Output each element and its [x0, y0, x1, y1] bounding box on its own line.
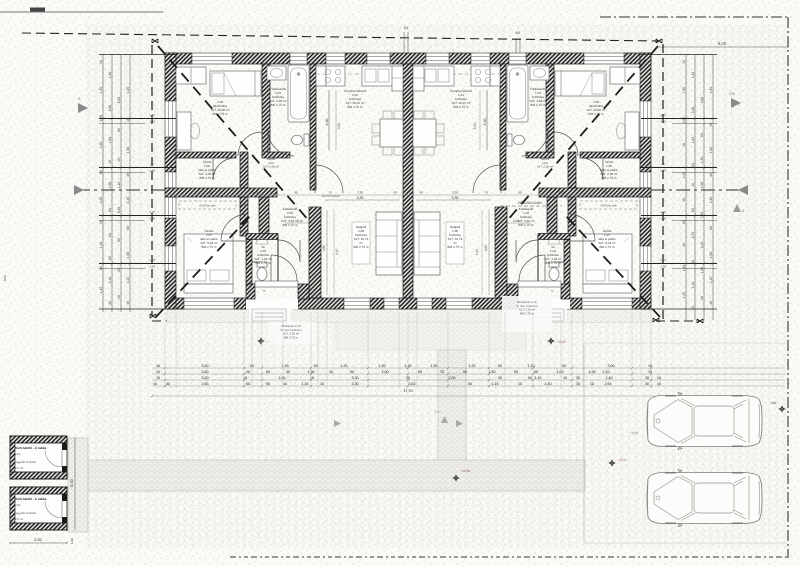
svg-text:1,45: 1,45 — [700, 267, 704, 274]
svg-text:1,98: 1,98 — [660, 217, 666, 221]
svg-text:50: 50 — [350, 370, 354, 374]
svg-text:fagyálló burkolat: fagyálló burkolat — [15, 460, 36, 464]
svg-text:10: 10 — [283, 382, 287, 386]
svg-text:1,00: 1,00 — [700, 182, 704, 189]
svg-text:1,50: 1,50 — [149, 210, 155, 214]
svg-text:10: 10 — [108, 160, 112, 164]
svg-text:10: 10 — [320, 382, 324, 386]
svg-text:2,10: 2,10 — [603, 370, 610, 374]
svg-text:+0,09: +0,09 — [461, 469, 470, 473]
svg-text:CN: CN — [729, 91, 735, 96]
svg-text:5,15: 5,15 — [335, 249, 339, 255]
svg-text:10: 10 — [709, 123, 713, 127]
svg-text:2,25: 2,25 — [99, 197, 103, 204]
svg-text:50: 50 — [562, 364, 566, 368]
svg-text:2,0 m²: 2,0 m² — [15, 517, 23, 521]
svg-text:2,85: 2,85 — [484, 245, 488, 251]
svg-text:5,15: 5,15 — [475, 249, 479, 255]
svg-text:1,15: 1,15 — [492, 382, 499, 386]
svg-text:10: 10 — [657, 382, 661, 386]
svg-text:1,50: 1,50 — [682, 117, 686, 124]
svg-text:2,10: 2,10 — [252, 191, 258, 195]
svg-text:30: 30 — [576, 382, 580, 386]
svg-text:1,15: 1,15 — [691, 282, 695, 289]
svg-text:60: 60 — [682, 220, 686, 224]
svg-text:10: 10 — [657, 376, 661, 380]
svg-text:10: 10 — [126, 118, 130, 122]
svg-text:+0,06: +0,06 — [618, 458, 627, 462]
svg-text:1,55: 1,55 — [379, 364, 386, 368]
svg-text:90: 90 — [709, 226, 713, 230]
svg-text:90: 90 — [208, 191, 212, 195]
svg-text:3,62: 3,62 — [409, 382, 416, 386]
svg-text:10: 10 — [329, 370, 333, 374]
svg-text:4,10: 4,10 — [700, 242, 704, 249]
svg-text:2,65: 2,65 — [605, 382, 612, 386]
svg-text:2,10: 2,10 — [513, 219, 519, 223]
svg-text:90: 90 — [266, 382, 270, 386]
svg-text:50: 50 — [246, 382, 250, 386]
svg-text:10: 10 — [153, 382, 157, 386]
svg-text:1,00: 1,00 — [70, 538, 74, 544]
svg-text:+0,00: +0,00 — [630, 431, 638, 435]
svg-text:50: 50 — [468, 382, 472, 386]
svg-text:40: 40 — [126, 173, 130, 177]
svg-text:4,00: 4,00 — [483, 119, 487, 126]
svg-text:60: 60 — [117, 128, 121, 132]
svg-text:3,00: 3,00 — [608, 364, 615, 368]
svg-text:10: 10 — [590, 382, 594, 386]
svg-text:8,5: 8,5 — [404, 26, 409, 30]
svg-text:2,25: 2,25 — [108, 105, 112, 112]
svg-text:1,50: 1,50 — [709, 147, 713, 154]
svg-text:10: 10 — [156, 370, 160, 374]
svg-text:2,00: 2,00 — [449, 376, 456, 380]
svg-text:8,5: 8,5 — [516, 31, 521, 35]
svg-text:3,30: 3,30 — [357, 196, 364, 200]
svg-text:1,98: 1,98 — [660, 169, 666, 173]
svg-text:1,20: 1,20 — [108, 72, 112, 79]
svg-text:17,70: 17,70 — [404, 389, 413, 393]
svg-text:1,50: 1,50 — [149, 258, 155, 262]
svg-text:10: 10 — [691, 183, 695, 187]
svg-text:+0,42: +0,42 — [557, 340, 566, 344]
svg-text:1,15: 1,15 — [108, 277, 112, 284]
svg-text:70: 70 — [328, 191, 332, 195]
svg-text:1,25: 1,25 — [469, 364, 476, 368]
svg-text:3,65: 3,65 — [473, 123, 477, 130]
svg-text:2,00: 2,00 — [382, 370, 389, 374]
svg-text:50: 50 — [99, 220, 103, 224]
svg-text:70: 70 — [484, 191, 488, 195]
svg-text:fagyálló burkolat: fagyálló burkolat — [15, 511, 36, 515]
svg-text:2,40: 2,40 — [545, 382, 552, 386]
svg-text:Kerti tároló - 1. lakás: Kerti tároló - 1. lakás — [15, 497, 47, 501]
svg-text:60: 60 — [534, 370, 538, 374]
svg-text:1,50: 1,50 — [126, 147, 130, 154]
svg-text:90: 90 — [393, 191, 397, 195]
svg-text:10: 10 — [563, 376, 567, 380]
svg-text:+0,00 ksz jelb: +0,00 ksz jelb — [599, 204, 617, 208]
svg-text:1,45: 1,45 — [682, 292, 686, 299]
svg-text:60: 60 — [108, 208, 112, 212]
svg-text:1,35: 1,35 — [99, 87, 103, 94]
svg-text:45: 45 — [691, 306, 695, 310]
svg-text:3,30: 3,30 — [352, 376, 359, 380]
svg-text:30: 30 — [645, 382, 649, 386]
svg-text:10: 10 — [518, 382, 522, 386]
svg-text:60: 60 — [99, 266, 103, 270]
svg-text:1,15: 1,15 — [126, 277, 130, 284]
svg-text:1,15: 1,15 — [302, 382, 309, 386]
svg-text:10: 10 — [709, 301, 713, 305]
svg-text:30: 30 — [576, 376, 580, 380]
svg-text:1,40: 1,40 — [99, 242, 103, 249]
svg-text:1,55: 1,55 — [682, 87, 686, 94]
svg-text:20: 20 — [246, 370, 250, 374]
svg-text:2,0 m²: 2,0 m² — [15, 466, 23, 470]
svg-text:10: 10 — [117, 158, 121, 162]
svg-text:+0,00 ksz jelb: +0,00 ksz jelb — [198, 204, 216, 208]
svg-text:90: 90 — [108, 256, 112, 260]
svg-text:3,65: 3,65 — [337, 123, 341, 130]
svg-text:1,98: 1,98 — [660, 120, 666, 124]
svg-text:40: 40 — [286, 370, 290, 374]
svg-text:25: 25 — [117, 268, 121, 272]
svg-text:1,45: 1,45 — [99, 287, 103, 294]
svg-text:1,98: 1,98 — [660, 265, 666, 269]
svg-text:A: A — [78, 96, 81, 101]
svg-text:2,25: 2,25 — [691, 107, 695, 114]
svg-text:50: 50 — [514, 370, 518, 374]
svg-text:10: 10 — [682, 143, 686, 147]
svg-text:60: 60 — [99, 170, 103, 174]
svg-text:2,25: 2,25 — [117, 97, 121, 104]
svg-text:1,50: 1,50 — [709, 252, 713, 259]
svg-text:3,00: 3,00 — [202, 370, 209, 374]
svg-text:1,30: 1,30 — [700, 157, 704, 164]
svg-text:3,30: 3,30 — [452, 191, 458, 195]
svg-text:30: 30 — [498, 376, 502, 380]
svg-text:10: 10 — [682, 60, 686, 64]
svg-text:4,10: 4,10 — [126, 197, 130, 204]
svg-text:DNY: DNY — [434, 410, 442, 414]
svg-text:2,00: 2,00 — [34, 538, 41, 542]
svg-text:1,15: 1,15 — [709, 277, 713, 284]
svg-text:50: 50 — [691, 163, 695, 167]
svg-text:3,00: 3,00 — [202, 376, 209, 380]
svg-text:1,50: 1,50 — [660, 210, 666, 214]
svg-text:90: 90 — [604, 191, 608, 195]
svg-text:30: 30 — [99, 60, 103, 64]
svg-text:30: 30 — [700, 296, 704, 300]
svg-text:30: 30 — [645, 376, 649, 380]
svg-text:90: 90 — [419, 191, 423, 195]
svg-text:1,35: 1,35 — [691, 72, 695, 79]
svg-text:1,15: 1,15 — [535, 376, 542, 380]
svg-text:1,50: 1,50 — [660, 258, 666, 262]
svg-text:1,45: 1,45 — [709, 197, 713, 204]
svg-text:1,05: 1,05 — [99, 115, 103, 122]
svg-text:ácsi: ácsi — [3, 275, 7, 282]
svg-text:30: 30 — [682, 198, 686, 202]
svg-text:50: 50 — [528, 376, 532, 380]
svg-text:60: 60 — [418, 370, 422, 374]
svg-text:1,25: 1,25 — [341, 364, 348, 368]
svg-text:1,98: 1,98 — [149, 217, 155, 221]
svg-text:40: 40 — [682, 243, 686, 247]
svg-text:2,10: 2,10 — [558, 191, 564, 195]
svg-text:1,98: 1,98 — [149, 169, 155, 173]
svg-text:2,50: 2,50 — [279, 376, 286, 380]
svg-text:4,70: 4,70 — [240, 203, 246, 207]
svg-text:70: 70 — [440, 370, 444, 374]
svg-text:5,00: 5,00 — [718, 41, 727, 46]
svg-text:10: 10 — [156, 376, 160, 380]
svg-text:90: 90 — [691, 260, 695, 264]
svg-text:4,00: 4,00 — [325, 119, 329, 126]
svg-text:1,00: 1,00 — [557, 370, 564, 374]
svg-text:7,20: 7,20 — [700, 212, 704, 219]
svg-text:5,40: 5,40 — [117, 207, 121, 214]
svg-text:2,66: 2,66 — [202, 382, 209, 386]
svg-text:1,20: 1,20 — [149, 113, 155, 117]
svg-text:1,20: 1,20 — [126, 87, 130, 94]
svg-text:1,20: 1,20 — [660, 113, 666, 117]
svg-text:30: 30 — [117, 295, 121, 299]
svg-text:90: 90 — [518, 191, 522, 195]
svg-text:2,40: 2,40 — [606, 376, 613, 380]
svg-text:2,85: 2,85 — [322, 245, 326, 251]
svg-text:60: 60 — [661, 162, 665, 166]
svg-text:3,00: 3,00 — [202, 364, 209, 368]
svg-text:10: 10 — [156, 364, 160, 368]
svg-text:HE A200 kiváltó: HE A200 kiváltó — [518, 201, 542, 205]
svg-text:+0,0: +0,0 — [770, 401, 777, 405]
svg-text:2,01: 2,01 — [15, 503, 21, 507]
svg-text:1,55: 1,55 — [431, 364, 438, 368]
svg-text:1,00: 1,00 — [108, 182, 112, 189]
svg-text:10: 10 — [126, 301, 130, 305]
svg-text:60: 60 — [314, 364, 318, 368]
svg-text:3,30: 3,30 — [352, 382, 359, 386]
svg-text:3,30: 3,30 — [357, 191, 363, 195]
svg-text:1,05: 1,05 — [99, 142, 103, 149]
svg-text:60: 60 — [691, 208, 695, 212]
svg-text:5,00: 5,00 — [70, 479, 74, 486]
svg-text:60: 60 — [150, 162, 154, 166]
svg-text:30: 30 — [166, 382, 170, 386]
svg-text:60: 60 — [108, 233, 112, 237]
svg-text:50: 50 — [117, 238, 121, 242]
svg-text:60: 60 — [700, 133, 704, 137]
svg-text:75: 75 — [262, 289, 266, 293]
svg-text:75: 75 — [550, 289, 554, 293]
svg-text:1,35: 1,35 — [709, 87, 713, 94]
svg-text:4,70: 4,70 — [570, 203, 576, 207]
svg-text:60: 60 — [498, 364, 502, 368]
svg-text:1,20: 1,20 — [691, 137, 695, 144]
svg-text:1,30: 1,30 — [682, 172, 686, 179]
svg-text:1,50: 1,50 — [126, 252, 130, 259]
svg-text:90: 90 — [294, 191, 298, 195]
svg-text:90: 90 — [126, 226, 130, 230]
svg-text:1,98: 1,98 — [149, 120, 155, 124]
svg-text:3,30: 3,30 — [452, 196, 459, 200]
svg-text:2,75: 2,75 — [691, 232, 695, 239]
svg-text:1,50: 1,50 — [108, 137, 112, 144]
svg-text:1,29: 1,29 — [282, 364, 289, 368]
svg-text:3,95: 3,95 — [700, 97, 704, 104]
svg-text:50: 50 — [463, 370, 467, 374]
svg-text:40: 40 — [709, 173, 713, 177]
svg-text:2,10: 2,10 — [297, 219, 303, 223]
svg-text:1,40: 1,40 — [117, 182, 121, 189]
svg-text:45: 45 — [108, 301, 112, 305]
svg-text:1,98: 1,98 — [149, 265, 155, 269]
svg-text:1,40: 1,40 — [682, 265, 686, 272]
svg-text:4,30: 4,30 — [589, 370, 596, 374]
svg-text:Kerti tároló - 2. lakás: Kerti tároló - 2. lakás — [15, 446, 47, 450]
svg-text:60: 60 — [266, 370, 270, 374]
svg-text:2,01: 2,01 — [15, 452, 21, 456]
